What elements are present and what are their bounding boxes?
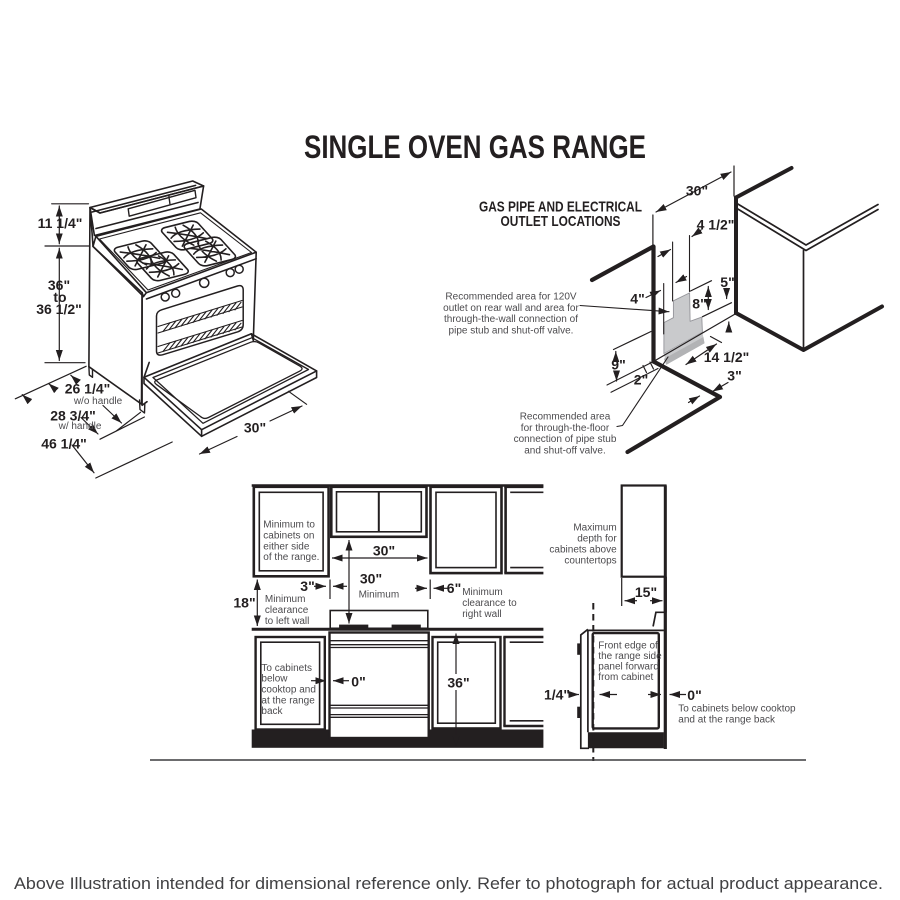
svg-text:clearance to: clearance to xyxy=(462,598,517,609)
svg-text:5": 5" xyxy=(720,274,734,290)
svg-text:depth for: depth for xyxy=(577,534,617,545)
svg-text:OUTLET LOCATIONS: OUTLET LOCATIONS xyxy=(501,213,621,230)
svg-text:Above Illustration intended fo: Above Illustration intended for dimensio… xyxy=(14,875,883,893)
svg-text:15": 15" xyxy=(635,584,657,600)
svg-text:Recommended area for 120V: Recommended area for 120V xyxy=(445,292,577,303)
svg-text:Recommended area: Recommended area xyxy=(520,412,611,423)
svg-text:Minimum: Minimum xyxy=(359,590,400,601)
svg-text:either side: either side xyxy=(263,541,310,552)
svg-text:cabinets above: cabinets above xyxy=(549,545,617,556)
svg-text:46 1/4": 46 1/4" xyxy=(41,435,87,451)
svg-text:through-the-wall connection of: through-the-wall connection of xyxy=(444,314,578,325)
svg-text:and at the range back: and at the range back xyxy=(678,715,776,726)
svg-text:cooktop and: cooktop and xyxy=(261,685,316,696)
svg-text:back: back xyxy=(261,706,283,717)
svg-text:To cabinets: To cabinets xyxy=(261,663,312,674)
svg-text:Minimum to: Minimum to xyxy=(263,520,315,531)
svg-text:to left wall: to left wall xyxy=(265,616,309,627)
svg-text:of the range.: of the range. xyxy=(263,552,319,563)
svg-text:30": 30" xyxy=(244,420,266,436)
svg-text:Minimum: Minimum xyxy=(462,587,503,598)
svg-text:2": 2" xyxy=(634,372,648,388)
svg-text:To cabinets below cooktop: To cabinets below cooktop xyxy=(678,704,796,715)
svg-text:w/o handle: w/o handle xyxy=(73,396,123,407)
svg-text:9": 9" xyxy=(611,357,625,373)
svg-text:1/4": 1/4" xyxy=(544,687,570,703)
svg-text:Minimum: Minimum xyxy=(265,594,306,605)
svg-text:18": 18" xyxy=(233,595,255,611)
svg-text:and shut-off valve.: and shut-off valve. xyxy=(524,445,606,456)
svg-text:Maximum: Maximum xyxy=(573,523,616,534)
svg-text:4 1/2": 4 1/2" xyxy=(697,217,735,233)
svg-text:36": 36" xyxy=(447,675,469,691)
svg-text:right wall: right wall xyxy=(462,609,501,620)
svg-text:0": 0" xyxy=(351,674,365,690)
svg-text:outlet on rear wall and area f: outlet on rear wall and area for xyxy=(443,303,579,314)
svg-text:11 1/4": 11 1/4" xyxy=(38,215,83,231)
svg-text:8": 8" xyxy=(692,296,706,312)
svg-text:14 1/2": 14 1/2" xyxy=(704,349,750,365)
svg-text:w/ handle: w/ handle xyxy=(58,421,102,432)
svg-text:cabinets on: cabinets on xyxy=(263,530,314,541)
svg-text:3": 3" xyxy=(727,368,741,384)
svg-text:Front edge of: Front edge of xyxy=(598,641,658,652)
svg-text:6": 6" xyxy=(447,580,461,596)
svg-text:30": 30" xyxy=(686,183,708,199)
svg-text:SINGLE OVEN GAS RANGE: SINGLE OVEN GAS RANGE xyxy=(304,129,646,165)
svg-text:pipe stub and shut-off valve.: pipe stub and shut-off valve. xyxy=(449,325,574,336)
svg-text:connection of pipe stub: connection of pipe stub xyxy=(514,434,617,445)
svg-text:at the range: at the range xyxy=(261,695,315,706)
svg-text:countertops: countertops xyxy=(564,556,616,567)
svg-text:panel forward: panel forward xyxy=(598,662,659,673)
svg-text:clearance: clearance xyxy=(265,605,309,616)
svg-text:for through-the-floor: for through-the-floor xyxy=(521,423,610,434)
svg-text:36 1/2": 36 1/2" xyxy=(36,301,82,317)
svg-text:the range side: the range side xyxy=(598,651,662,662)
svg-text:30": 30" xyxy=(373,543,395,559)
svg-text:0": 0" xyxy=(687,687,701,703)
svg-text:below: below xyxy=(261,674,288,685)
svg-text:26 1/4": 26 1/4" xyxy=(65,381,111,397)
svg-text:4": 4" xyxy=(630,291,644,307)
svg-text:30": 30" xyxy=(360,571,382,587)
svg-text:3": 3" xyxy=(300,578,314,594)
svg-text:from cabinet: from cabinet xyxy=(598,672,653,683)
